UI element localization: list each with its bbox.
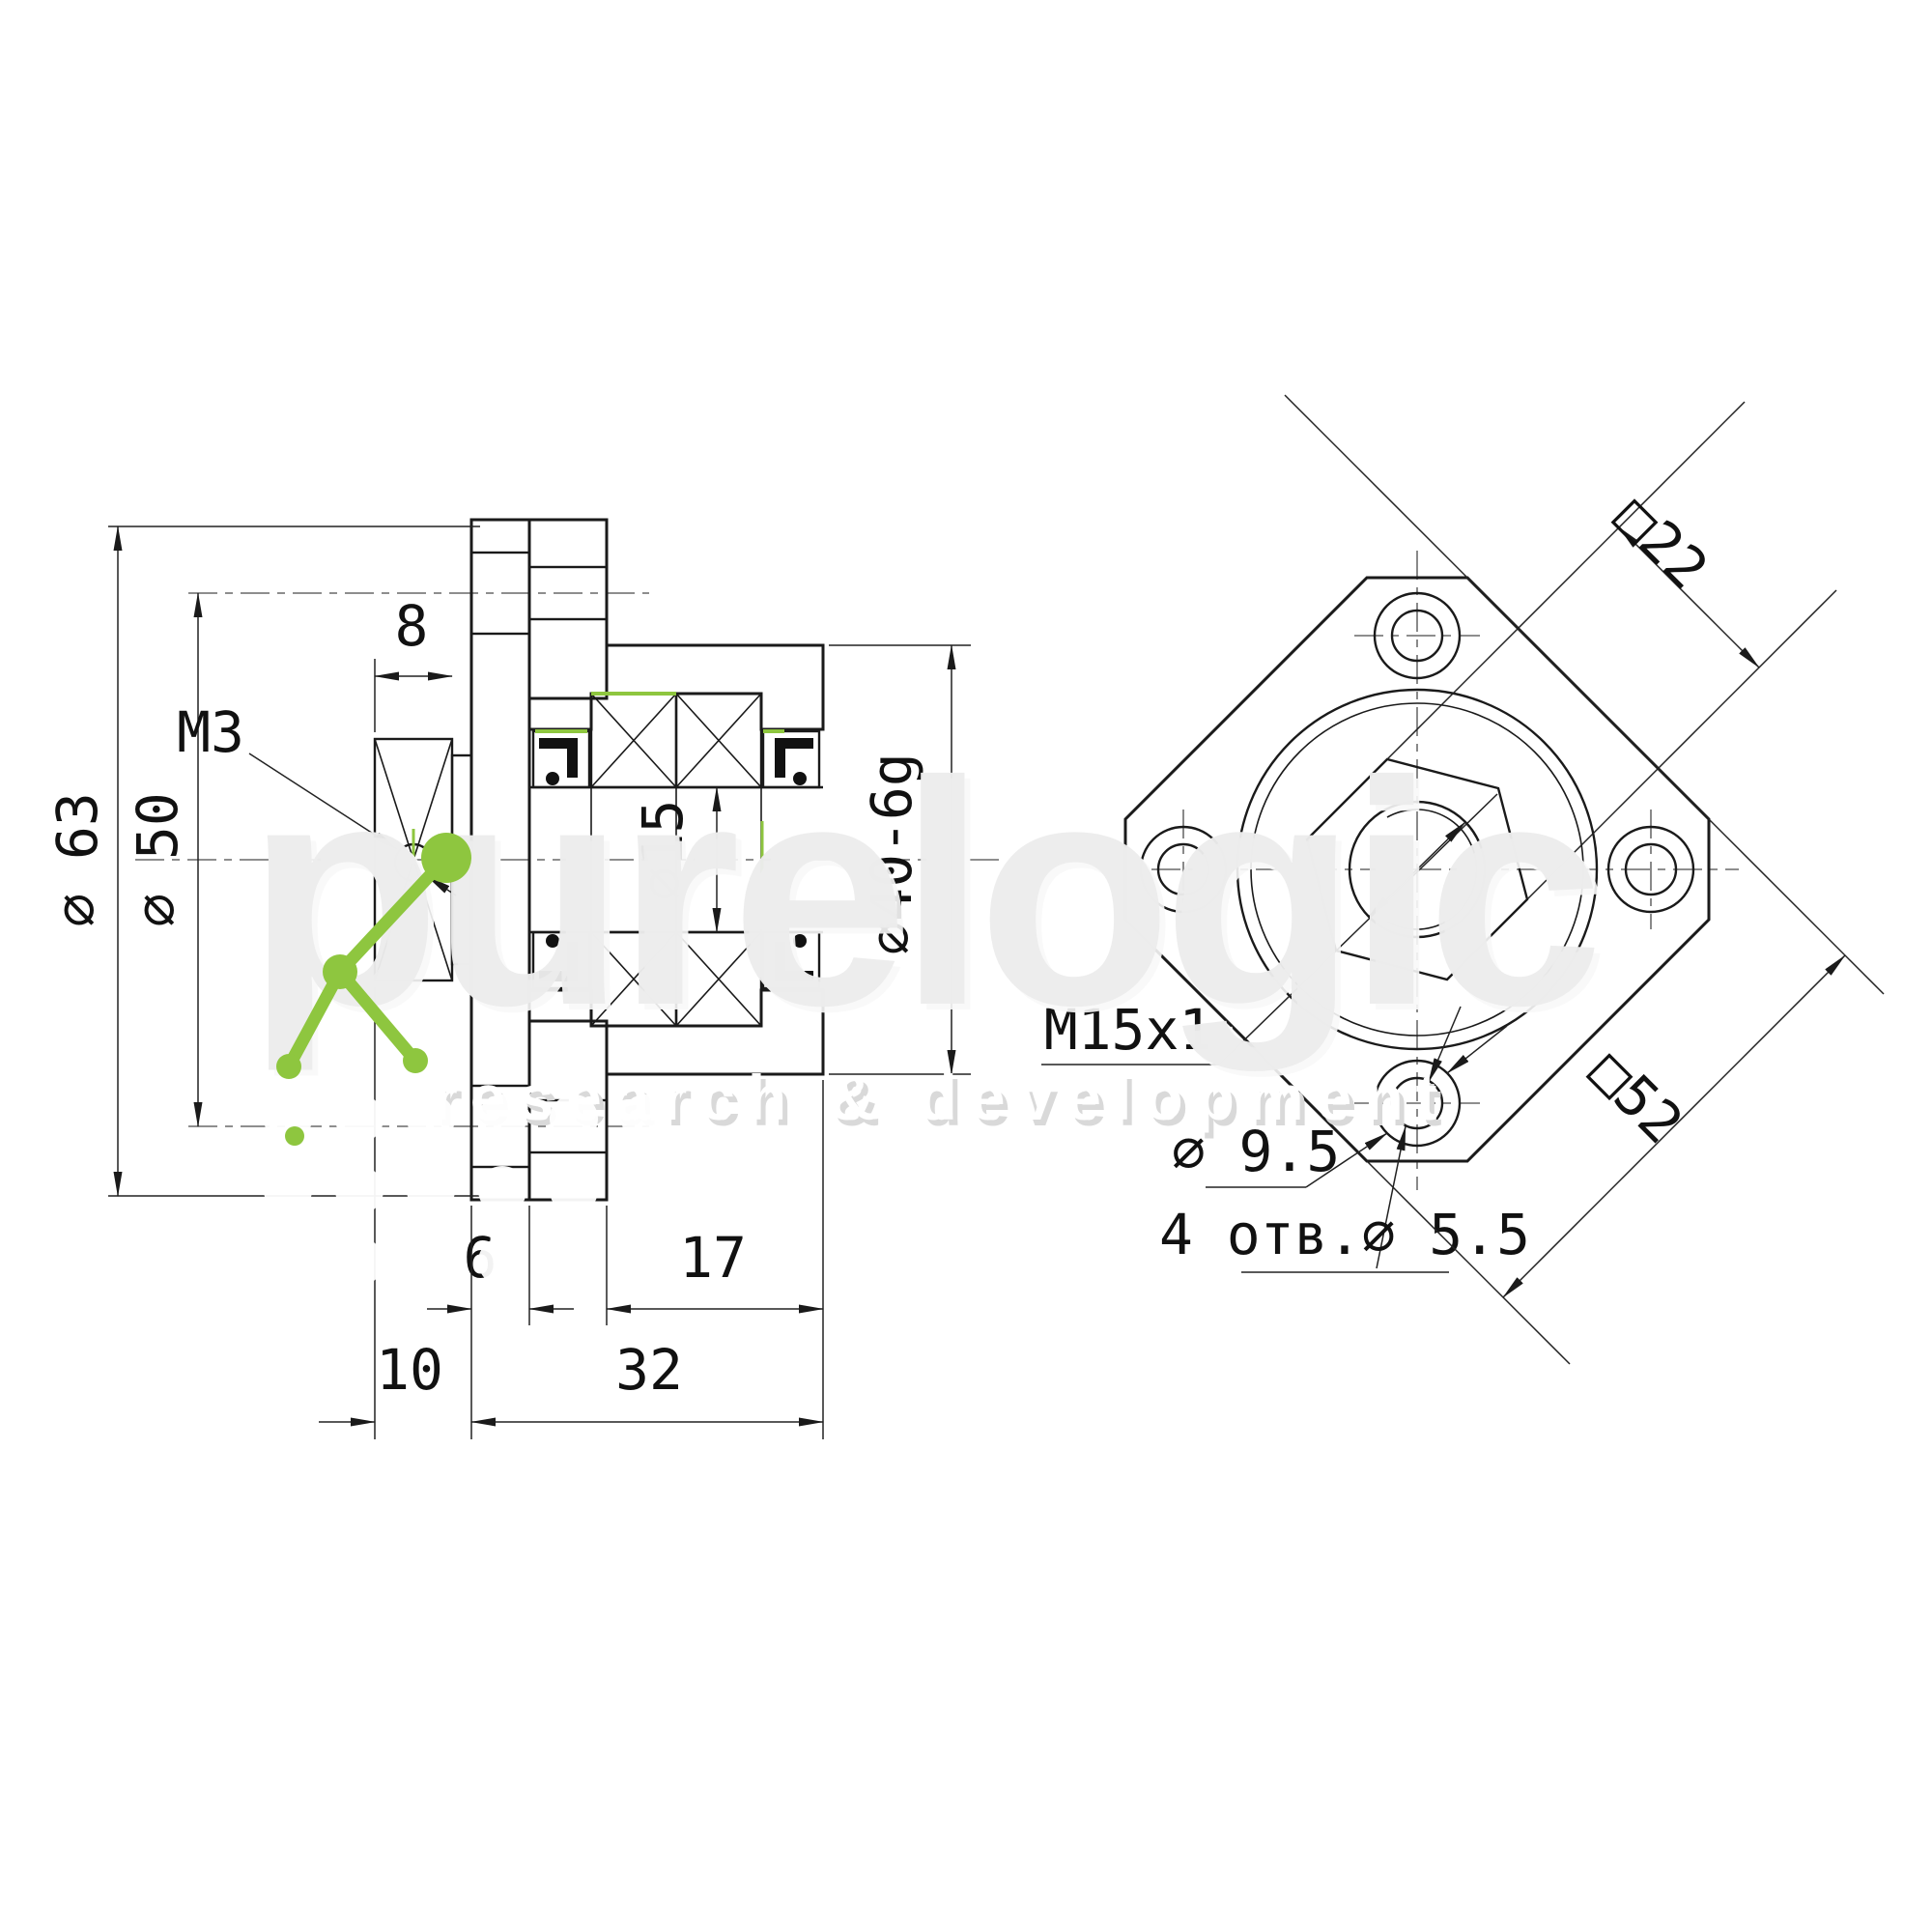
- label-sq52: □52: [1577, 1038, 1695, 1156]
- watermark-tagline: research & development: [433, 1061, 1450, 1134]
- flange-lug-top: [529, 520, 607, 698]
- label-thick6: 6: [464, 1225, 497, 1291]
- watermark-brand: purelogic: [246, 710, 1594, 1077]
- label-sq22: □22: [1603, 484, 1720, 602]
- label-m3: M3: [177, 699, 244, 765]
- label-dia50: ⌀ 50: [125, 792, 190, 927]
- dim-bolt-circle-50: ⌀ 50: [125, 593, 198, 1126]
- label-len10: 10: [376, 1337, 443, 1403]
- label-width8: 8: [395, 593, 429, 659]
- drawing-canvas: ⌀ 63 ⌀ 50 8 M3 ⌀15 ⌀40-6g: [0, 0, 1932, 1932]
- dim-body-length-32: 32: [471, 1337, 823, 1422]
- label-len32: 32: [615, 1337, 683, 1403]
- label-len17: 17: [679, 1225, 747, 1291]
- label-holes4: 4 отв.⌀ 5.5: [1159, 1202, 1530, 1267]
- dim-flange-thickness-6: 6: [427, 1206, 574, 1325]
- label-dia63: ⌀ 63: [44, 792, 110, 927]
